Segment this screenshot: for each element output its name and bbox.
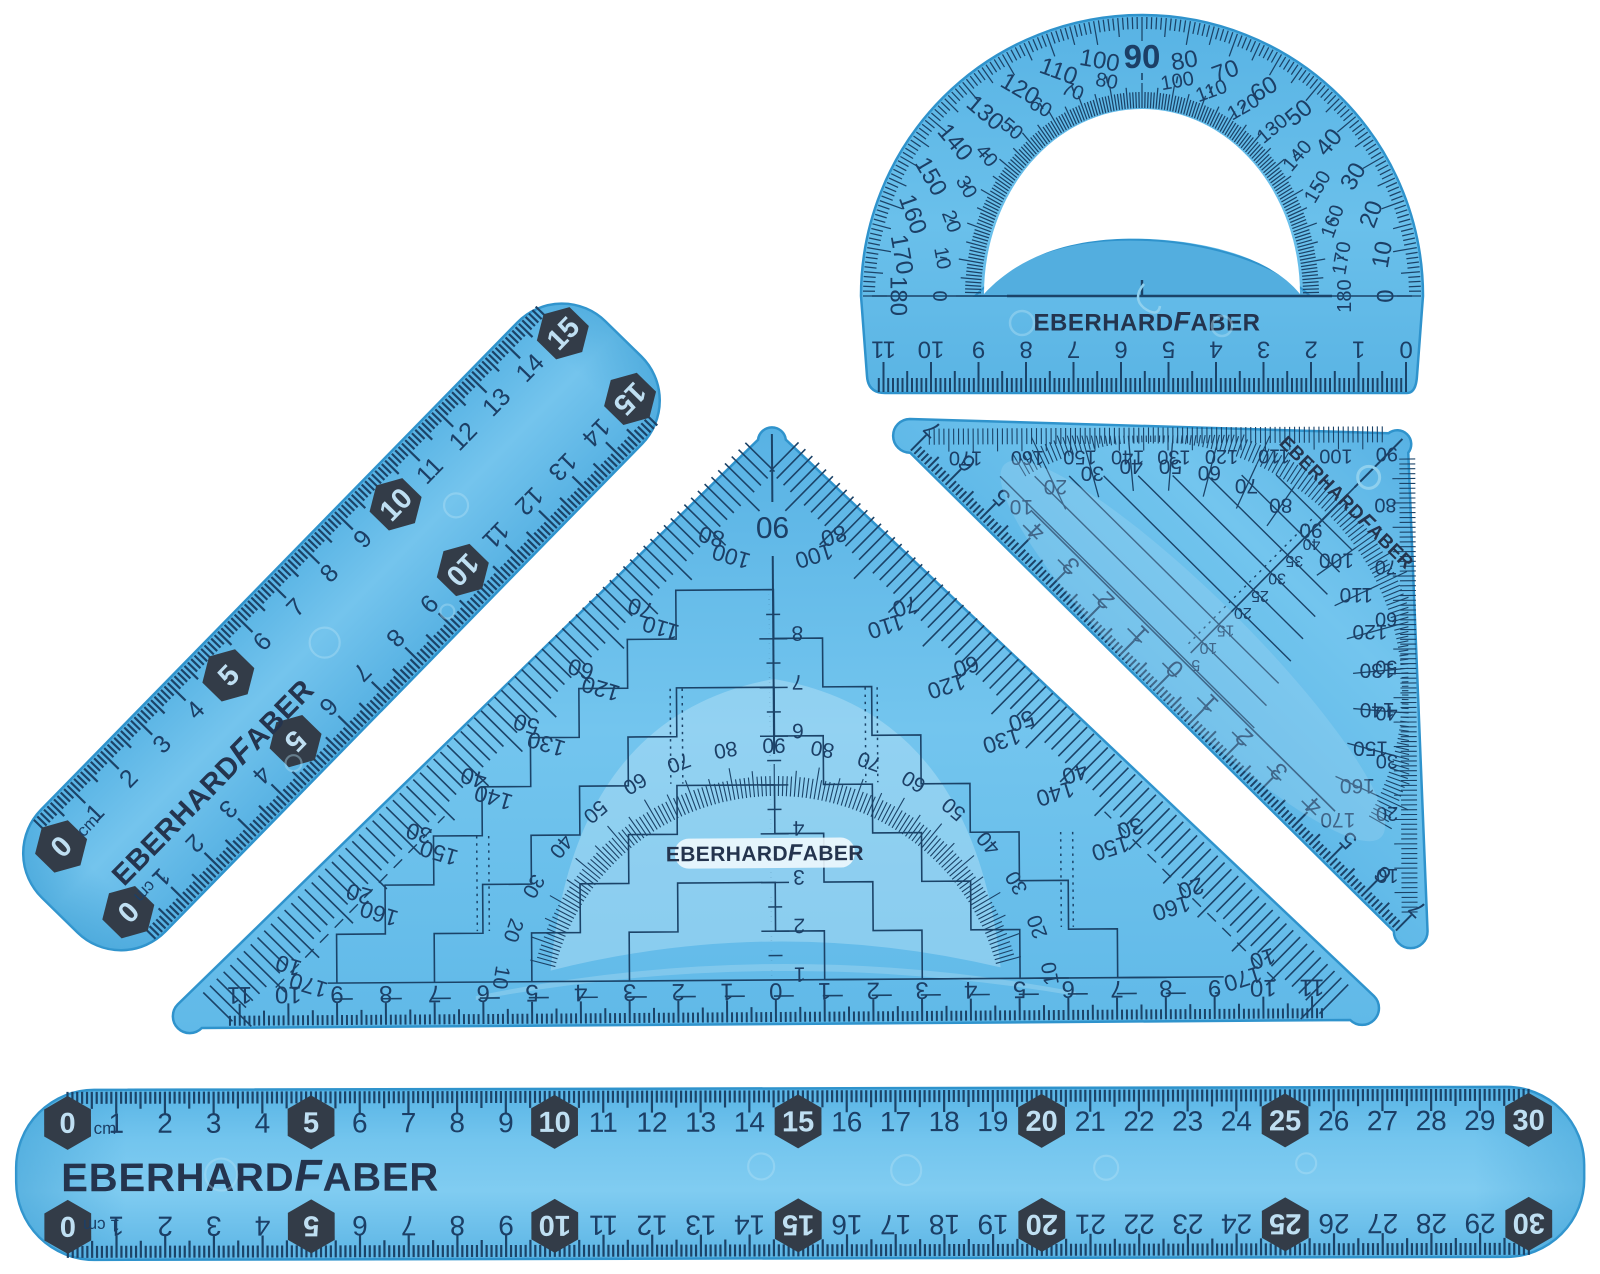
svg-text:4: 4 <box>574 979 588 1006</box>
svg-text:120: 120 <box>1205 445 1238 467</box>
svg-text:8: 8 <box>791 621 803 644</box>
svg-text:9: 9 <box>330 980 344 1007</box>
svg-text:18: 18 <box>929 1106 960 1137</box>
svg-text:60: 60 <box>1375 608 1397 630</box>
svg-text:80: 80 <box>1374 493 1396 515</box>
svg-text:0: 0 <box>769 977 783 1004</box>
svg-text:22: 22 <box>1124 1209 1155 1240</box>
svg-text:40: 40 <box>1375 702 1397 724</box>
svg-text:26: 26 <box>1318 1208 1349 1239</box>
svg-text:11: 11 <box>589 1210 618 1241</box>
svg-text:15: 15 <box>782 1106 814 1138</box>
svg-text:30: 30 <box>1512 1105 1544 1137</box>
svg-text:90: 90 <box>756 510 790 543</box>
svg-text:6: 6 <box>792 719 804 742</box>
svg-text:16: 16 <box>831 1209 862 1240</box>
svg-text:6: 6 <box>352 1107 368 1138</box>
svg-text:14: 14 <box>734 1209 765 1240</box>
svg-text:3: 3 <box>915 976 929 1003</box>
svg-text:13: 13 <box>685 1209 716 1240</box>
svg-text:9: 9 <box>1208 974 1222 1001</box>
svg-text:1: 1 <box>1352 335 1365 362</box>
svg-text:90: 90 <box>1124 38 1161 75</box>
svg-text:9: 9 <box>498 1107 514 1138</box>
svg-text:10: 10 <box>918 335 945 362</box>
svg-text:7: 7 <box>1067 335 1080 362</box>
svg-text:EBERHARDFABER: EBERHARDFABER <box>61 1151 439 1202</box>
svg-text:29: 29 <box>1464 1208 1495 1239</box>
svg-text:3: 3 <box>1257 335 1270 362</box>
svg-text:100: 100 <box>1319 444 1352 466</box>
svg-text:17: 17 <box>880 1106 911 1137</box>
svg-text:24: 24 <box>1221 1106 1252 1137</box>
svg-text:25: 25 <box>1269 1105 1301 1137</box>
svg-text:29: 29 <box>1464 1105 1495 1136</box>
svg-text:2: 2 <box>157 1108 173 1139</box>
svg-text:30: 30 <box>1513 1207 1545 1239</box>
svg-text:5: 5 <box>303 1107 319 1139</box>
svg-text:6: 6 <box>1061 975 1075 1002</box>
svg-text:10: 10 <box>539 1209 571 1241</box>
svg-text:24: 24 <box>1221 1208 1252 1239</box>
svg-text:13: 13 <box>685 1107 716 1138</box>
svg-text:8: 8 <box>450 1210 466 1241</box>
svg-text:2: 2 <box>793 914 805 937</box>
svg-text:10: 10 <box>1376 864 1398 886</box>
svg-text:80: 80 <box>712 736 739 763</box>
svg-text:26: 26 <box>1318 1105 1349 1136</box>
svg-text:8: 8 <box>1019 335 1032 362</box>
svg-text:12: 12 <box>636 1107 667 1138</box>
svg-text:10: 10 <box>487 964 514 991</box>
svg-text:20: 20 <box>1025 1106 1057 1138</box>
svg-text:12: 12 <box>637 1210 668 1241</box>
svg-text:5: 5 <box>303 1209 319 1241</box>
svg-text:2: 2 <box>1304 335 1317 362</box>
svg-text:27: 27 <box>1367 1208 1398 1239</box>
svg-text:50: 50 <box>1375 655 1397 677</box>
svg-text:15: 15 <box>782 1208 814 1240</box>
svg-text:19: 19 <box>977 1209 1008 1240</box>
svg-text:9: 9 <box>498 1210 514 1241</box>
svg-text:21: 21 <box>1075 1106 1106 1137</box>
svg-text:150: 150 <box>1063 446 1096 468</box>
svg-text:0: 0 <box>1399 335 1412 362</box>
svg-text:3: 3 <box>623 978 637 1005</box>
svg-text:4: 4 <box>255 1210 271 1241</box>
svg-text:140: 140 <box>1111 446 1144 468</box>
svg-text:6: 6 <box>1114 335 1127 362</box>
svg-text:17: 17 <box>880 1209 911 1240</box>
svg-text:25: 25 <box>1269 1207 1301 1239</box>
svg-text:9: 9 <box>972 335 985 362</box>
svg-text:4: 4 <box>255 1108 271 1139</box>
svg-text:10: 10 <box>538 1107 570 1139</box>
svg-text:8: 8 <box>379 980 393 1007</box>
svg-text:4: 4 <box>792 816 804 839</box>
svg-text:7: 7 <box>428 980 442 1007</box>
svg-text:110: 110 <box>1340 583 1373 606</box>
svg-text:0: 0 <box>59 1108 75 1140</box>
svg-text:28: 28 <box>1416 1105 1447 1136</box>
svg-text:8: 8 <box>449 1107 465 1138</box>
svg-text:7: 7 <box>792 670 804 693</box>
svg-text:2: 2 <box>157 1211 173 1242</box>
svg-text:3: 3 <box>206 1108 222 1139</box>
svg-text:90: 90 <box>1376 442 1398 464</box>
svg-text:18: 18 <box>929 1209 960 1240</box>
svg-text:11: 11 <box>871 335 896 362</box>
svg-text:80: 80 <box>1094 69 1120 95</box>
svg-text:7: 7 <box>401 1107 417 1138</box>
svg-text:4: 4 <box>964 976 978 1003</box>
svg-text:11: 11 <box>1299 974 1324 1001</box>
svg-text:5: 5 <box>525 979 539 1006</box>
svg-text:0: 0 <box>60 1210 76 1242</box>
svg-text:11: 11 <box>227 981 252 1008</box>
svg-text:14: 14 <box>734 1107 765 1138</box>
svg-text:70: 70 <box>1235 474 1258 497</box>
svg-text:EBERHARDFABER: EBERHARDFABER <box>666 839 864 866</box>
svg-text:2: 2 <box>671 978 685 1005</box>
svg-text:7: 7 <box>1110 975 1124 1002</box>
svg-text:23: 23 <box>1172 1208 1203 1239</box>
svg-text:3: 3 <box>206 1210 222 1241</box>
svg-text:28: 28 <box>1416 1208 1447 1239</box>
svg-text:1: 1 <box>794 962 806 985</box>
svg-text:6: 6 <box>352 1210 368 1241</box>
svg-text:130: 130 <box>1157 445 1190 467</box>
svg-text:2: 2 <box>866 977 880 1004</box>
svg-text:1: 1 <box>720 978 734 1005</box>
svg-text:1 cm: 1 cm <box>83 1216 120 1235</box>
svg-text:10: 10 <box>1367 239 1398 270</box>
svg-text:10: 10 <box>929 245 955 271</box>
svg-text:16: 16 <box>831 1106 862 1137</box>
svg-text:10: 10 <box>1037 960 1064 987</box>
svg-text:1: 1 <box>818 977 832 1004</box>
svg-text:5: 5 <box>1013 976 1027 1003</box>
svg-text:cm: cm <box>94 1119 117 1138</box>
svg-text:5: 5 <box>1162 335 1175 362</box>
svg-text:7: 7 <box>401 1210 417 1241</box>
svg-text:27: 27 <box>1367 1105 1398 1136</box>
svg-text:21: 21 <box>1075 1209 1106 1240</box>
svg-text:11: 11 <box>589 1107 618 1138</box>
svg-text:170: 170 <box>949 446 982 468</box>
svg-text:22: 22 <box>1123 1106 1154 1137</box>
svg-text:20: 20 <box>1026 1208 1058 1240</box>
svg-text:8: 8 <box>1159 975 1173 1002</box>
svg-text:3: 3 <box>793 865 805 888</box>
svg-text:4: 4 <box>1209 335 1222 362</box>
svg-text:6: 6 <box>477 979 491 1006</box>
svg-text:19: 19 <box>977 1106 1008 1137</box>
svg-text:23: 23 <box>1172 1106 1203 1137</box>
svg-text:30: 30 <box>1376 749 1398 771</box>
